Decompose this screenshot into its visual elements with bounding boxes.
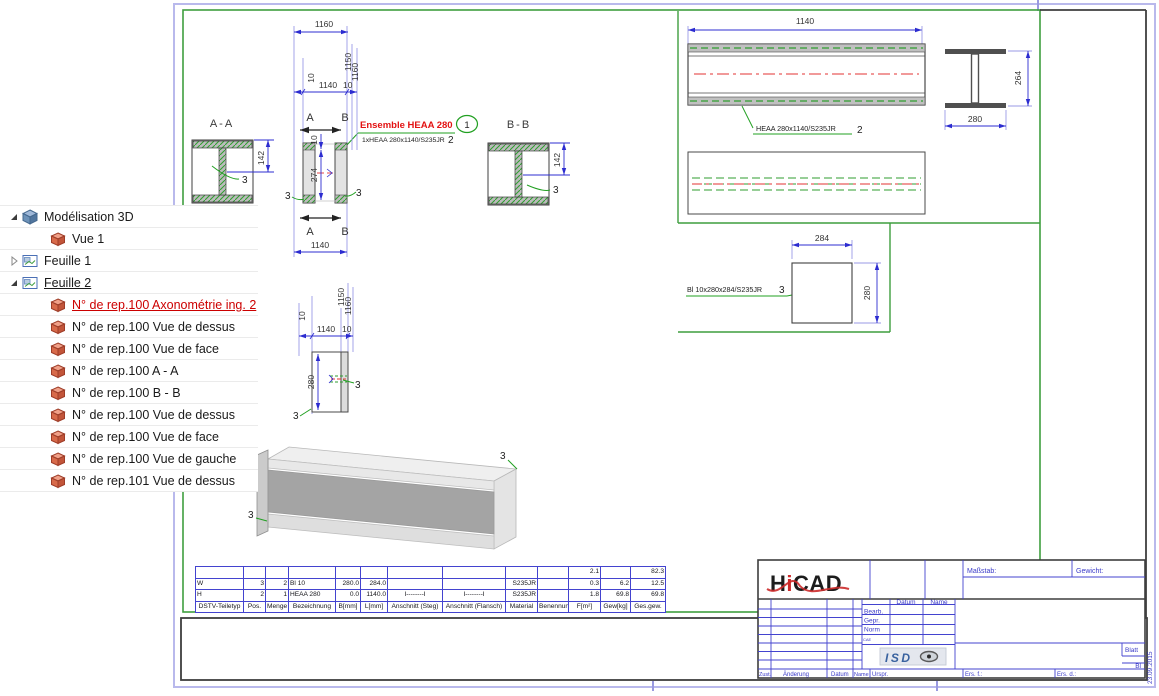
tree-item[interactable]: N° de rep.101 Vue de dessus xyxy=(0,470,258,492)
section-marker-a: A xyxy=(306,112,314,124)
item-ref: 3 xyxy=(242,175,248,186)
table-cell: 0.0 xyxy=(336,590,361,602)
table-header-cell: B[mm] xyxy=(336,602,361,614)
table-header-cell: Menge xyxy=(266,602,289,614)
table-cell xyxy=(538,579,569,591)
dim-1140: 1140 xyxy=(319,80,338,90)
tree-item[interactable]: N° de rep.100 Vue de face xyxy=(0,426,258,448)
table-cell xyxy=(538,567,569,579)
part-icon xyxy=(50,451,67,467)
tree-item[interactable]: N° de rep.100 Vue de gauche xyxy=(0,448,258,470)
assembly-annotation[interactable]: Ensemble HEAA 280 1 1xHEAA 280x1140/S235… xyxy=(346,116,478,147)
table-header-cell: L[mm] xyxy=(361,602,388,614)
tree-item-label: N° de rep.100 Vue de face xyxy=(72,430,219,444)
assembly-title: Ensemble HEAA 280 xyxy=(360,120,453,131)
table-header-cell: Gew[kg] xyxy=(601,602,631,614)
table-cell xyxy=(289,567,336,579)
view-tree-panel: Modélisation 3DVue 1Feuille 1Feuille 2N°… xyxy=(0,205,258,492)
dim-10: 10 xyxy=(297,311,307,321)
zust-label: Zust. xyxy=(759,672,772,678)
table-cell xyxy=(506,567,538,579)
section-aa-label: A-A xyxy=(210,118,234,130)
table-cell: 6.2 xyxy=(601,579,631,591)
table-cell: 12.5 xyxy=(631,579,666,591)
tree-item-label: N° de rep.100 Axonométrie ing. 2 xyxy=(72,298,256,312)
table-cell: 69.8 xyxy=(631,590,666,602)
view-cube-icon xyxy=(50,231,67,247)
part-icon xyxy=(50,473,67,489)
section-marker-b: B xyxy=(341,112,348,124)
tree-item[interactable]: N° de rep.100 A - A xyxy=(0,360,258,382)
table-cell: 2 xyxy=(266,579,289,591)
svg-text:ISD: ISD xyxy=(885,651,913,665)
balloon-number: 1 xyxy=(464,120,469,131)
beam-label: HEAA 280x1140/S235JR xyxy=(756,124,836,133)
sheet-icon xyxy=(22,253,39,269)
table-header-cell: Benennung xyxy=(538,602,569,614)
table-cell: HEAA 280 xyxy=(289,590,336,602)
name-label: Name xyxy=(930,599,948,606)
tree-item[interactable]: Vue 1 xyxy=(0,228,258,250)
svg-text:HiCAD: HiCAD xyxy=(770,571,842,596)
dim-284: 284 xyxy=(815,233,829,243)
table-cell: 1.8 xyxy=(569,590,601,602)
table-cell: I--------I xyxy=(443,590,506,602)
dim-280: 280 xyxy=(968,114,982,124)
table-header-cell: Anschnitt (Flansch) xyxy=(443,602,506,614)
table-cell: H xyxy=(196,590,244,602)
table-cell: 2 xyxy=(244,590,266,602)
hicad-workspace: A-A 142 3 B-B 142 3 Ensemble HEAA 280 1 … xyxy=(0,0,1159,691)
tree-item-label: N° de rep.100 A - A xyxy=(72,364,178,378)
table-cell xyxy=(538,590,569,602)
table-cell: S235JR xyxy=(506,590,538,602)
table-cell: S235JR xyxy=(506,579,538,591)
table-header-cell: Pos. xyxy=(244,602,266,614)
modeling-cube-icon xyxy=(22,209,39,225)
tree-item[interactable]: N° de rep.100 B - B xyxy=(0,382,258,404)
table-cell: 0.3 xyxy=(569,579,601,591)
part-icon xyxy=(50,363,67,379)
section-view-aa[interactable]: A-A 142 3 xyxy=(192,118,274,203)
dim-1140: 1140 xyxy=(317,324,336,334)
table-cell xyxy=(336,567,361,579)
assembly-part-pos: 2 xyxy=(448,135,454,146)
datum2-label: Datum xyxy=(831,672,849,678)
tree-item-label: N° de rep.100 Vue de dessus xyxy=(72,320,235,334)
table-header-cell: Material xyxy=(506,602,538,614)
section-marker-b: B xyxy=(341,226,348,238)
item-ref: 3 xyxy=(553,185,559,196)
assembly-part-line: 1xHEAA 280x1140/S235JR xyxy=(362,137,445,144)
chevron-right-icon[interactable] xyxy=(6,253,22,269)
front-view[interactable]: 1160 1150 1160 10 1140 10 A B 274 10 3 3… xyxy=(285,19,362,257)
table-header-cell: DSTV-Teiletyp xyxy=(196,602,244,614)
tree-item-label: N° de rep.100 Vue de gauche xyxy=(72,452,236,466)
tree-item[interactable]: N° de rep.100 Vue de dessus xyxy=(0,404,258,426)
title-block: HiCAD Maßstab: Gewicht: Datum Name Bearb… xyxy=(758,560,1154,684)
tree-item-label: Modélisation 3D xyxy=(44,210,134,224)
dim-10: 10 xyxy=(306,73,316,83)
table-cell xyxy=(443,579,506,591)
part-icon xyxy=(50,319,67,335)
tree-item-label: Feuille 1 xyxy=(44,254,91,268)
dim-280: 280 xyxy=(306,375,316,389)
ers-d-label: Ers. d.: xyxy=(1057,672,1076,678)
beam-pos: 2 xyxy=(857,125,863,136)
plate-pos: 3 xyxy=(779,285,785,296)
table-cell: 2.1 xyxy=(569,567,601,579)
urspr-label: Urspr. xyxy=(872,672,888,678)
dim-10: 10 xyxy=(343,80,353,90)
table-cell xyxy=(388,579,443,591)
table-cell: 69.8 xyxy=(601,590,631,602)
table-cell: Bl 10 xyxy=(289,579,336,591)
table-header-cell: Bezeichnung xyxy=(289,602,336,614)
item-ref: 3 xyxy=(293,411,299,422)
tree-item[interactable]: N° de rep.100 Vue de face xyxy=(0,338,258,360)
tree-item-label: Vue 1 xyxy=(72,232,104,246)
gewicht-label: Gewicht: xyxy=(1076,568,1103,575)
dim-142: 142 xyxy=(552,153,562,167)
gepr-label: Gepr. xyxy=(864,618,880,625)
plate-label: Bl 10x280x284/S235JR xyxy=(687,285,762,294)
table-cell: W xyxy=(196,579,244,591)
dim-1160: 1160 xyxy=(343,297,353,316)
table-cell xyxy=(361,567,388,579)
table-header-cell: F[m²] xyxy=(569,602,601,614)
isd-logo: ISD xyxy=(880,648,946,665)
dim-264: 264 xyxy=(1013,71,1023,85)
tree-item-label: N° de rep.100 Vue de dessus xyxy=(72,408,235,422)
datum-label: Datum xyxy=(896,599,915,606)
hicad-logo: HiCAD xyxy=(767,571,849,596)
item-ref: 3 xyxy=(355,380,361,391)
dim-142: 142 xyxy=(256,151,266,165)
dim-280: 280 xyxy=(862,286,872,300)
part-icon xyxy=(50,429,67,445)
dim-1140: 1140 xyxy=(311,240,330,250)
blatt-label: Blatt xyxy=(1125,647,1138,654)
tree-item[interactable]: Feuille 1 xyxy=(0,250,258,272)
masstab-label: Maßstab: xyxy=(967,568,996,575)
table-cell: 284.0 xyxy=(361,579,388,591)
bearb-label: Bearb. xyxy=(864,609,883,616)
table-cell: 3 xyxy=(244,579,266,591)
part-icon xyxy=(50,341,67,357)
section-bb-label: B-B xyxy=(507,119,531,131)
ers-f-label: Ers. f.: xyxy=(965,672,983,678)
tree-item-label: N° de rep.101 Vue de dessus xyxy=(72,474,235,488)
dim-10: 10 xyxy=(309,135,319,145)
table-cell xyxy=(443,567,506,579)
item-ref: 3 xyxy=(356,188,362,199)
item-ref: 3 xyxy=(248,510,254,521)
tree-item[interactable]: Feuille 2 xyxy=(0,272,258,294)
plate-detail-view[interactable]: Bl 10x280x284/S235JR 3 284 280 xyxy=(686,233,881,323)
top-view[interactable]: 10 1150 1160 1140 10 280 3 3 xyxy=(293,283,361,422)
table-cell xyxy=(196,567,244,579)
section-marker-a: A xyxy=(306,226,314,238)
part-icon xyxy=(50,297,67,313)
table-cell: I--------I xyxy=(388,590,443,602)
dim-10: 10 xyxy=(342,324,352,334)
item-ref: 3 xyxy=(500,451,506,462)
table-cell: 280.0 xyxy=(336,579,361,591)
sheet-date: 23.09.2015 xyxy=(1147,651,1154,684)
table-cell: 82.3 xyxy=(631,567,666,579)
dim-274: 274 xyxy=(309,168,319,182)
tree-item[interactable]: Modélisation 3D xyxy=(0,206,258,228)
norm-label: Norm xyxy=(864,627,880,634)
cae-label: CAE xyxy=(863,637,872,642)
chevron-expanded-icon[interactable] xyxy=(6,209,22,225)
tree-item[interactable]: N° de rep.100 Vue de dessus xyxy=(0,316,258,338)
table-cell xyxy=(388,567,443,579)
part-icon xyxy=(50,407,67,423)
dim-1160: 1160 xyxy=(315,19,334,29)
chevron-expanded-icon[interactable] xyxy=(6,275,22,291)
table-cell xyxy=(266,567,289,579)
parts-table: 2.182.3W32Bl 10280.0284.0S235JR0.36.212.… xyxy=(195,566,666,613)
tree-item-label: Feuille 2 xyxy=(44,276,91,290)
tree-item-label: N° de rep.100 B - B xyxy=(72,386,181,400)
section-view-bb[interactable]: B-B 142 3 xyxy=(488,119,570,205)
dim-1140: 1140 xyxy=(796,16,815,26)
sheet-icon xyxy=(22,275,39,291)
tree-item-label: N° de rep.100 Vue de face xyxy=(72,342,219,356)
beam-detail-view[interactable]: 1140 HEAA 280x1140/S235JR 2 264 280 xyxy=(688,16,1032,214)
aenderung-label: Änderung xyxy=(783,671,809,678)
axonometric-view[interactable]: 3 3 xyxy=(248,447,517,549)
table-cell xyxy=(601,567,631,579)
item-ref: 3 xyxy=(285,191,291,202)
table-cell: 1 xyxy=(266,590,289,602)
table-header-cell: Ges.gew. xyxy=(631,602,666,614)
bl-label: Bl xyxy=(1135,663,1141,670)
name2-label: Name xyxy=(854,672,869,678)
table-header-cell: Anschnitt (Steg) xyxy=(388,602,443,614)
table-cell: 1140.0 xyxy=(361,590,388,602)
table-cell xyxy=(244,567,266,579)
part-icon xyxy=(50,385,67,401)
tree-item[interactable]: N° de rep.100 Axonométrie ing. 2 xyxy=(0,294,258,316)
dim-1160: 1160 xyxy=(350,63,360,82)
